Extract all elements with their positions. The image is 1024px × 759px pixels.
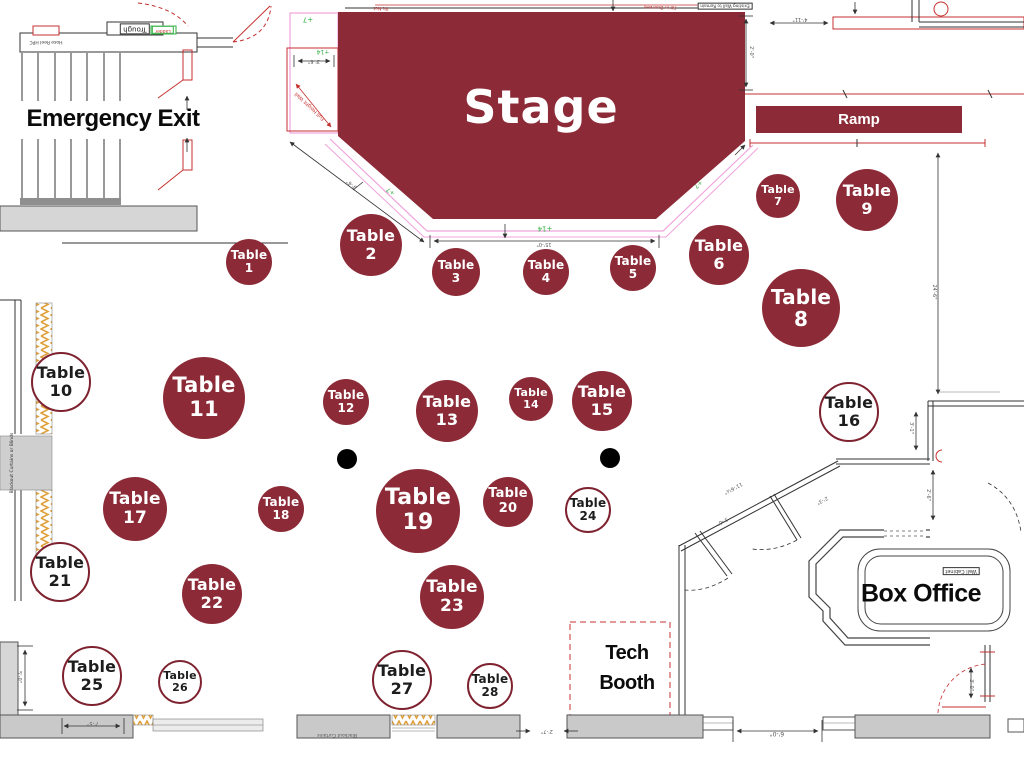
table-8-marker[interactable]: Table8 [762, 269, 840, 347]
annotation-text: 7'-5" [87, 720, 99, 726]
table-number: 17 [123, 509, 147, 528]
table-word: Table [578, 383, 626, 401]
table-word: Table [423, 393, 471, 411]
table-number: 15 [591, 401, 614, 419]
table-word: Table [328, 389, 365, 402]
floor-plan: Emergency Exit Stage Ramp Box Office Tec… [0, 0, 1024, 759]
table-number: 24 [579, 510, 596, 523]
annotation-text: 2'-7" [541, 728, 553, 734]
tech-booth-label-line2: Booth [599, 668, 654, 698]
annotation-text: 3'-0" [968, 679, 974, 691]
table-2-marker[interactable]: Table2 [340, 214, 402, 276]
table-word: Table [231, 249, 268, 262]
pillar-dot [600, 448, 620, 468]
table-number: 22 [201, 594, 224, 612]
annotation-text: +14 [538, 224, 553, 233]
table-number: 4 [542, 272, 551, 285]
table-1-marker[interactable]: Table1 [226, 239, 272, 285]
table-number: 26 [172, 682, 188, 694]
table-number: 12 [337, 402, 354, 415]
table-number: 28 [481, 686, 498, 699]
table-22-marker[interactable]: Table22 [182, 564, 242, 624]
table-number: 18 [272, 509, 289, 522]
table-number: 1 [245, 262, 254, 275]
table-word: Table [528, 259, 565, 272]
annotation-text: 5'-0" [16, 671, 22, 683]
annotation-text: Hose Reel HPC [29, 38, 62, 44]
stage-label: Stage [463, 80, 618, 134]
table-4-marker[interactable]: Table4 [523, 249, 569, 295]
table-18-marker[interactable]: Table18 [258, 486, 304, 532]
annotation-text: 24'-6" [931, 284, 937, 299]
pillar-dot [337, 449, 357, 469]
table-10-marker[interactable]: Table10 [31, 352, 91, 412]
annotation-text: 4'-11" [792, 16, 807, 22]
table-word: Table [36, 554, 84, 572]
table-number: 9 [861, 200, 872, 218]
table-number: 10 [50, 382, 73, 400]
annotation-text: +14 [317, 47, 330, 55]
ramp-area: Ramp [756, 106, 962, 133]
table-word: Table [843, 182, 891, 200]
table-13-marker[interactable]: Table13 [416, 380, 478, 442]
annotation-text: Blackout Curtains [317, 731, 357, 737]
box-office-walls [679, 401, 1024, 716]
table-20-marker[interactable]: Table20 [483, 477, 533, 527]
table-26-marker[interactable]: Table26 [158, 660, 202, 704]
table-word: Table [188, 576, 236, 594]
table-number: 14 [523, 399, 539, 411]
table-19-marker[interactable]: Table19 [376, 469, 460, 553]
table-25-marker[interactable]: Table25 [62, 646, 122, 706]
annotation-text: Trough [120, 24, 150, 35]
ramp-label: Ramp [838, 111, 880, 128]
table-word: Table [109, 490, 160, 509]
table-word: Table [570, 497, 607, 510]
annotation-text: Ladder [152, 26, 174, 34]
table-21-marker[interactable]: Table21 [30, 542, 90, 602]
table-word: Table [347, 227, 395, 245]
table-23-marker[interactable]: Table23 [420, 565, 484, 629]
table-number: 25 [81, 676, 104, 694]
table-number: 6 [713, 255, 724, 273]
annotation-text: +7 [303, 15, 313, 24]
annotation-text: 3'-6" [308, 58, 320, 64]
table-word: Table [378, 662, 426, 680]
table-3-marker[interactable]: Table3 [432, 248, 480, 296]
table-28-marker[interactable]: Table28 [467, 663, 513, 709]
table-6-marker[interactable]: Table6 [689, 225, 749, 285]
annotation-text: 15'-0" [536, 241, 551, 247]
annotation-text: 2'-0" [748, 46, 754, 58]
table-12-marker[interactable]: Table12 [323, 379, 369, 425]
annotation-text: Existing Wall to Remain [697, 2, 752, 9]
table-number: 23 [440, 597, 464, 616]
annotation-text: 2'-6" [925, 489, 931, 501]
table-9-marker[interactable]: Table9 [836, 169, 898, 231]
table-number: 7 [774, 196, 782, 208]
table-word: Table [37, 364, 85, 382]
table-14-marker[interactable]: Table14 [509, 377, 553, 421]
table-5-marker[interactable]: Table5 [610, 245, 656, 291]
table-word: Table [771, 286, 831, 308]
table-17-marker[interactable]: Table17 [103, 477, 167, 541]
annotation-text: Blackout Curtains or Blinds [10, 433, 16, 494]
table-word: Table [385, 486, 451, 511]
box-office-label: Box Office [861, 580, 981, 609]
annotation-text: 6'-0" [770, 729, 784, 737]
table-15-marker[interactable]: Table15 [572, 371, 632, 431]
table-number: 21 [49, 572, 72, 590]
tech-booth-label-line1: Tech [599, 638, 654, 668]
table-number: 2 [365, 245, 376, 263]
tech-booth-label: Tech Booth [599, 638, 654, 698]
annotation-text: 3'-1" [908, 422, 914, 434]
table-number: 8 [794, 308, 808, 330]
table-word: Table [472, 673, 509, 686]
table-number: 11 [189, 398, 219, 422]
table-word: Table [488, 487, 528, 502]
table-word: Table [695, 237, 743, 255]
table-11-marker[interactable]: Table11 [163, 357, 245, 439]
table-7-marker[interactable]: Table7 [756, 174, 800, 218]
table-word: Table [172, 374, 235, 398]
table-number: 19 [402, 511, 433, 536]
annotation-text: Fill in Doorway [644, 3, 677, 9]
table-word: Table [615, 255, 652, 268]
table-number: 27 [391, 680, 414, 698]
table-27-marker[interactable]: Table27 [372, 650, 432, 710]
table-number: 5 [629, 268, 638, 281]
table-number: 3 [452, 272, 461, 285]
table-number: 20 [499, 502, 518, 517]
table-number: 13 [436, 411, 459, 429]
table-number: 16 [838, 412, 861, 430]
table-word: Table [426, 578, 477, 597]
annotation-text: Wall Cabinet [942, 567, 979, 575]
bottom-wall [0, 715, 1024, 742]
table-word: Table [438, 259, 475, 272]
table-word: Table [825, 394, 873, 412]
table-word: Table [263, 496, 300, 509]
table-24-marker[interactable]: Table24 [565, 487, 611, 533]
table-word: Table [68, 658, 116, 676]
table-16-marker[interactable]: Table16 [819, 382, 879, 442]
emergency-exit-label: Emergency Exit [26, 105, 199, 133]
annotation-text: Pit Net [374, 4, 389, 10]
